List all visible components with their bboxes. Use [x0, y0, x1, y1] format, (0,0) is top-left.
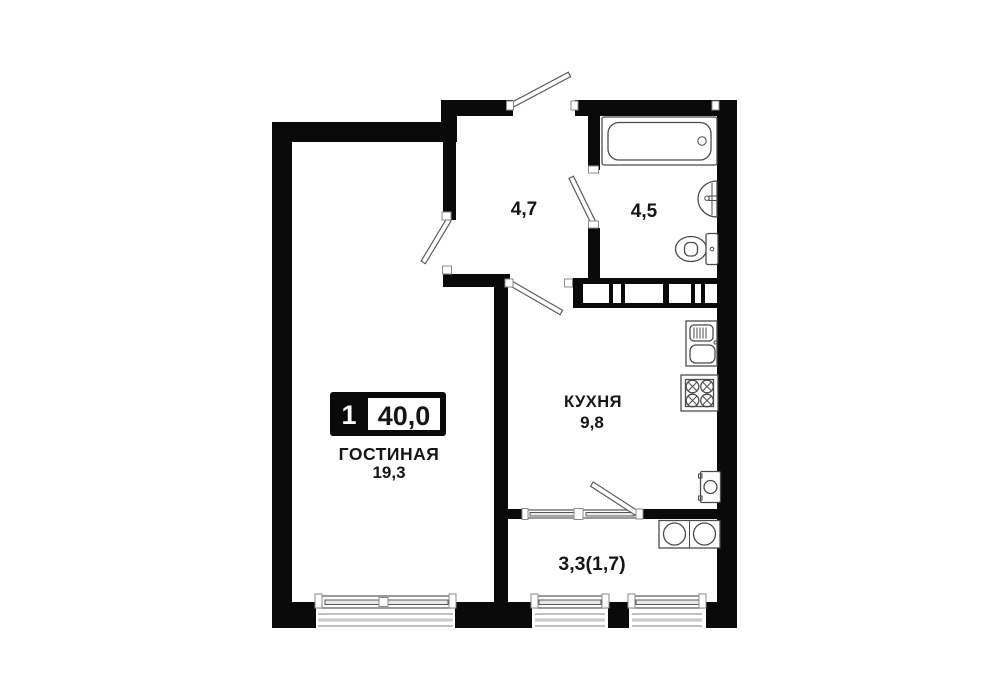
balcony-area: 3,3(1,7): [558, 553, 625, 575]
stove-outline: [681, 375, 718, 411]
badge-room-count: 1: [341, 400, 356, 430]
toilet: [676, 234, 719, 265]
area-badge: 1 40,0: [330, 392, 446, 436]
wall-end-marker: [505, 279, 513, 287]
badge-total-area: 40,0: [378, 401, 431, 431]
bathroom-door-leaf: [569, 176, 596, 225]
window-end-cap: [628, 594, 635, 608]
wall-bottom-2: [453, 602, 535, 628]
wall-living-door: [443, 142, 456, 220]
window-end-cap: [602, 594, 609, 608]
window-sash: [539, 600, 601, 605]
stove: [681, 375, 718, 411]
wall-bathroom-left-upper: [588, 116, 600, 170]
wall-bottom-1: [272, 602, 318, 628]
wall-balcony-top-right: [638, 509, 717, 519]
wall-end-marker: [443, 266, 452, 274]
kitchen-area: 9,8: [580, 413, 604, 432]
washbasin-bowl: [698, 181, 717, 217]
wall-left: [272, 122, 292, 628]
window-sash: [530, 513, 574, 517]
window-sash: [388, 600, 448, 605]
wall-bathroom-left-lower: [588, 228, 600, 280]
vent-cell: [669, 284, 691, 303]
kitchen-door-leaf: [511, 282, 563, 315]
living-room-window: [315, 594, 456, 628]
washbasin: [698, 181, 717, 217]
vent-cell: [613, 284, 621, 303]
balcony-window-2: [628, 594, 706, 628]
entrance-door-leaf: [512, 72, 571, 106]
window-end-cap: [531, 594, 538, 608]
vent-cell: [695, 284, 701, 303]
hallway-area: 4,7: [511, 199, 537, 220]
kitchen-sink: [686, 321, 717, 366]
window-sash: [325, 600, 382, 605]
washing-machine: [699, 472, 721, 503]
wall-end-marker: [589, 166, 599, 173]
window-sash: [586, 513, 634, 517]
wall-hallway-bottom: [443, 274, 510, 287]
walls: [272, 100, 737, 628]
toilet-tank: [706, 234, 718, 265]
washer-dryer-pair: [659, 521, 720, 549]
living-room-area: 19,3: [372, 463, 405, 482]
bathroom-area: 4,5: [631, 201, 658, 222]
toilet-bowl: [676, 237, 707, 262]
wall-end-marker: [565, 279, 573, 287]
wall-top-hallway: [441, 100, 513, 116]
kitchen-name: КУХНЯ: [564, 393, 622, 411]
living-room-door-leaf: [421, 218, 451, 263]
bathtub: [602, 117, 717, 165]
balcony-window-1: [531, 594, 609, 628]
wall-end-marker: [636, 509, 643, 519]
window-mullion: [574, 509, 583, 520]
vent-cell: [583, 284, 609, 303]
vent-cell: [625, 284, 663, 303]
wall-end-marker: [589, 221, 599, 228]
vent-shaft: [573, 278, 717, 308]
living-room-name: ГОСТИНАЯ: [339, 444, 440, 464]
kitchen-balcony-window: [522, 509, 638, 520]
vent-cell: [705, 284, 717, 303]
wall-end-marker: [712, 101, 719, 110]
window-end-cap: [699, 594, 706, 608]
wall-living-kitchen-divider: [494, 287, 508, 602]
window-sash: [636, 600, 699, 605]
wall-top-living: [272, 122, 457, 142]
wall-right: [717, 100, 737, 628]
wall-end-marker: [442, 212, 451, 220]
window-mullion: [379, 598, 388, 607]
wall-end-marker: [571, 101, 578, 110]
window-end-cap: [449, 594, 456, 608]
wall-balcony-top-left: [494, 509, 526, 519]
floor-plan-image: 1 40,0 ГОСТИНАЯ 19,3 КУХНЯ 9,8 4,7 4,5 3…: [0, 0, 1006, 700]
window-end-cap: [315, 594, 322, 608]
wall-bottom-4: [702, 602, 737, 628]
floor-plan-svg: 1 40,0 ГОСТИНАЯ 19,3 КУХНЯ 9,8 4,7 4,5 3…: [0, 0, 1006, 700]
window-end-cap: [522, 509, 528, 520]
wall-end-marker: [507, 101, 514, 110]
bathtub-outline: [602, 117, 717, 165]
